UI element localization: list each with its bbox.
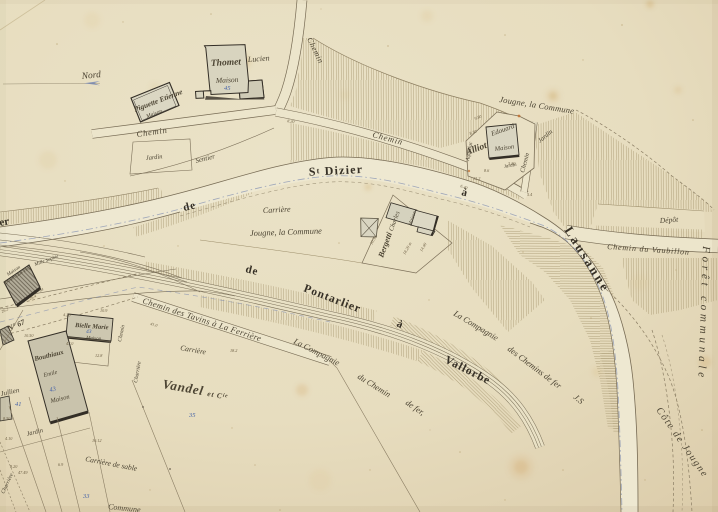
svg-text:8.6: 8.6 xyxy=(484,168,490,173)
svg-text:Dépôt: Dépôt xyxy=(659,215,680,225)
svg-text:Thomet: Thomet xyxy=(211,57,242,69)
svg-text:35: 35 xyxy=(188,412,196,419)
svg-text:Maison: Maison xyxy=(215,75,239,85)
svg-text:43: 43 xyxy=(86,328,92,335)
svg-text:18.2: 18.2 xyxy=(230,348,237,353)
svg-text:47.49: 47.49 xyxy=(18,470,28,475)
svg-text:12.8: 12.8 xyxy=(95,353,103,358)
svg-text:4.10: 4.10 xyxy=(5,436,13,441)
svg-text:3.20: 3.20 xyxy=(508,161,516,166)
svg-text:4.20: 4.20 xyxy=(63,312,72,318)
svg-text:10.9: 10.9 xyxy=(100,308,108,313)
svg-text:8.20: 8.20 xyxy=(10,464,18,469)
svg-text:Nord: Nord xyxy=(80,70,101,82)
svg-text:13.2: 13.2 xyxy=(473,176,480,181)
svg-text:33: 33 xyxy=(82,493,90,500)
svg-text:5.4: 5.4 xyxy=(527,192,532,197)
svg-text:6.9: 6.9 xyxy=(58,462,64,467)
svg-text:10.12: 10.12 xyxy=(92,438,101,443)
svg-text:47.0: 47.0 xyxy=(66,341,74,346)
svg-text:45: 45 xyxy=(224,85,231,92)
svg-text:Lucien: Lucien xyxy=(247,53,270,64)
svg-text:Carrière: Carrière xyxy=(263,205,292,215)
svg-text:41: 41 xyxy=(15,401,22,408)
svg-text:10.50: 10.50 xyxy=(24,333,34,338)
